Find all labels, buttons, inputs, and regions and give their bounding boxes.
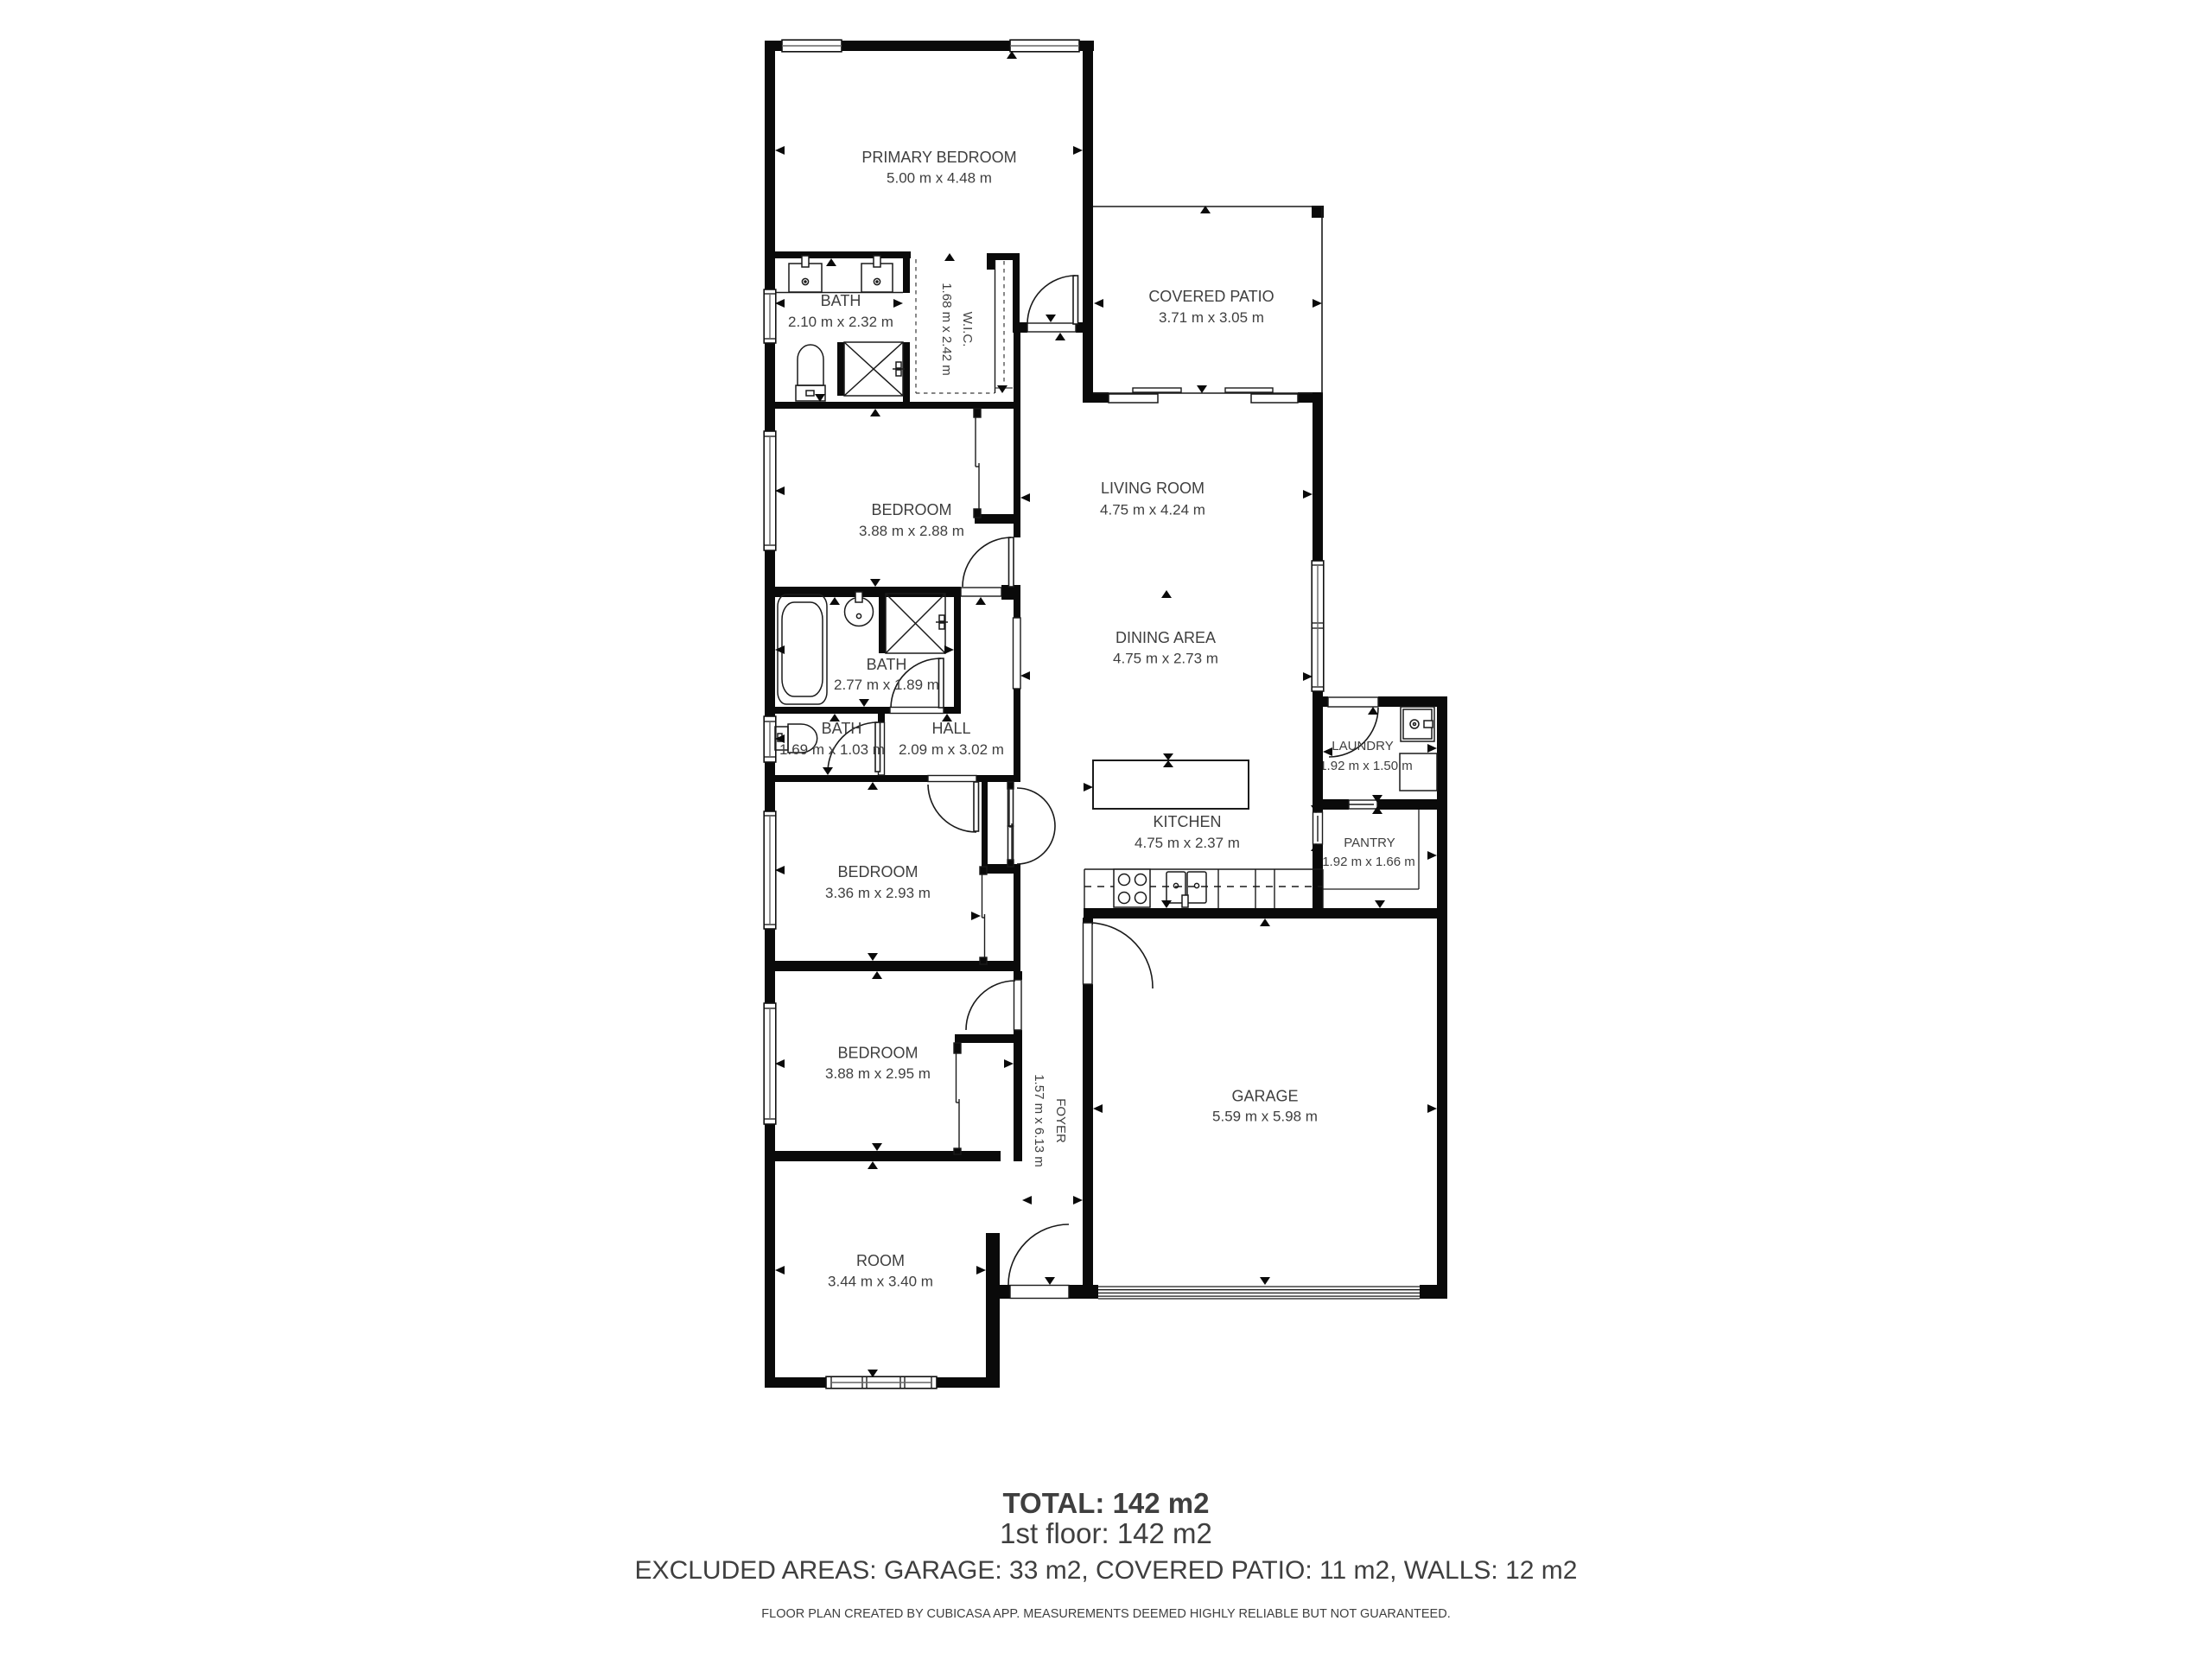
svg-text:BATH: BATH — [822, 720, 862, 737]
svg-text:LIVING ROOM: LIVING ROOM — [1101, 480, 1205, 497]
svg-text:3.36 m x 2.93 m: 3.36 m x 2.93 m — [825, 885, 931, 901]
svg-text:1.69 m x 1.03 m: 1.69 m x 1.03 m — [779, 741, 885, 758]
svg-text:3.88 m x 2.95 m: 3.88 m x 2.95 m — [825, 1065, 931, 1082]
svg-text:4.75 m x 2.73 m: 4.75 m x 2.73 m — [1113, 651, 1218, 667]
svg-text:4.75 m x 4.24 m: 4.75 m x 4.24 m — [1100, 502, 1205, 518]
svg-text:EXCLUDED AREAS: GARAGE: 33 m2,: EXCLUDED AREAS: GARAGE: 33 m2, COVERED P… — [635, 1556, 1578, 1585]
svg-text:2.77 m x 1.89 m: 2.77 m x 1.89 m — [834, 677, 939, 693]
svg-text:HALL: HALL — [931, 720, 970, 737]
svg-text:COVERED PATIO: COVERED PATIO — [1148, 288, 1274, 305]
svg-text:BATH: BATH — [867, 656, 907, 673]
svg-text:KITCHEN: KITCHEN — [1153, 813, 1221, 830]
svg-text:4.75 m x 2.37 m: 4.75 m x 2.37 m — [1135, 835, 1240, 851]
svg-text:3.71 m x 3.05 m: 3.71 m x 3.05 m — [1159, 309, 1264, 326]
svg-text:LAUNDRY: LAUNDRY — [1332, 739, 1393, 753]
svg-text:5.59 m x 5.98 m: 5.59 m x 5.98 m — [1212, 1109, 1318, 1125]
svg-text:1.92 m x 1.66 m: 1.92 m x 1.66 m — [1322, 855, 1415, 869]
svg-text:PRIMARY BEDROOM: PRIMARY BEDROOM — [861, 149, 1016, 166]
svg-text:1.68 m x 2.42 m: 1.68 m x 2.42 m — [939, 283, 954, 376]
svg-text:TOTAL: 142 m2: TOTAL: 142 m2 — [1002, 1487, 1209, 1519]
svg-text:PANTRY: PANTRY — [1344, 836, 1395, 850]
svg-text:FLOOR PLAN CREATED BY CUBICASA: FLOOR PLAN CREATED BY CUBICASA APP. MEAS… — [761, 1607, 1450, 1621]
svg-text:DINING AREA: DINING AREA — [1116, 629, 1216, 646]
svg-text:1st floor: 142 m2: 1st floor: 142 m2 — [1000, 1517, 1212, 1549]
svg-text:BEDROOM: BEDROOM — [871, 501, 951, 518]
svg-text:BATH: BATH — [821, 292, 861, 309]
svg-text:ROOM: ROOM — [856, 1252, 905, 1269]
svg-text:1.92 m x 1.50 m: 1.92 m x 1.50 m — [1319, 759, 1413, 773]
svg-text:5.00 m x 4.48 m: 5.00 m x 4.48 m — [887, 170, 992, 187]
svg-text:W.I.C.: W.I.C. — [960, 312, 975, 347]
svg-text:GARAGE: GARAGE — [1231, 1088, 1298, 1105]
svg-text:2.09 m x 3.02 m: 2.09 m x 3.02 m — [899, 741, 1004, 758]
svg-text:FOYER: FOYER — [1053, 1098, 1068, 1143]
svg-text:BEDROOM: BEDROOM — [837, 1045, 918, 1062]
svg-text:2.10 m x 2.32 m: 2.10 m x 2.32 m — [788, 314, 893, 330]
svg-text:3.88 m x 2.88 m: 3.88 m x 2.88 m — [859, 523, 964, 539]
svg-text:BEDROOM: BEDROOM — [837, 863, 918, 880]
svg-text:1.57 m x 6.13 m: 1.57 m x 6.13 m — [1032, 1074, 1046, 1167]
svg-text:3.44 m x 3.40 m: 3.44 m x 3.40 m — [828, 1274, 933, 1290]
